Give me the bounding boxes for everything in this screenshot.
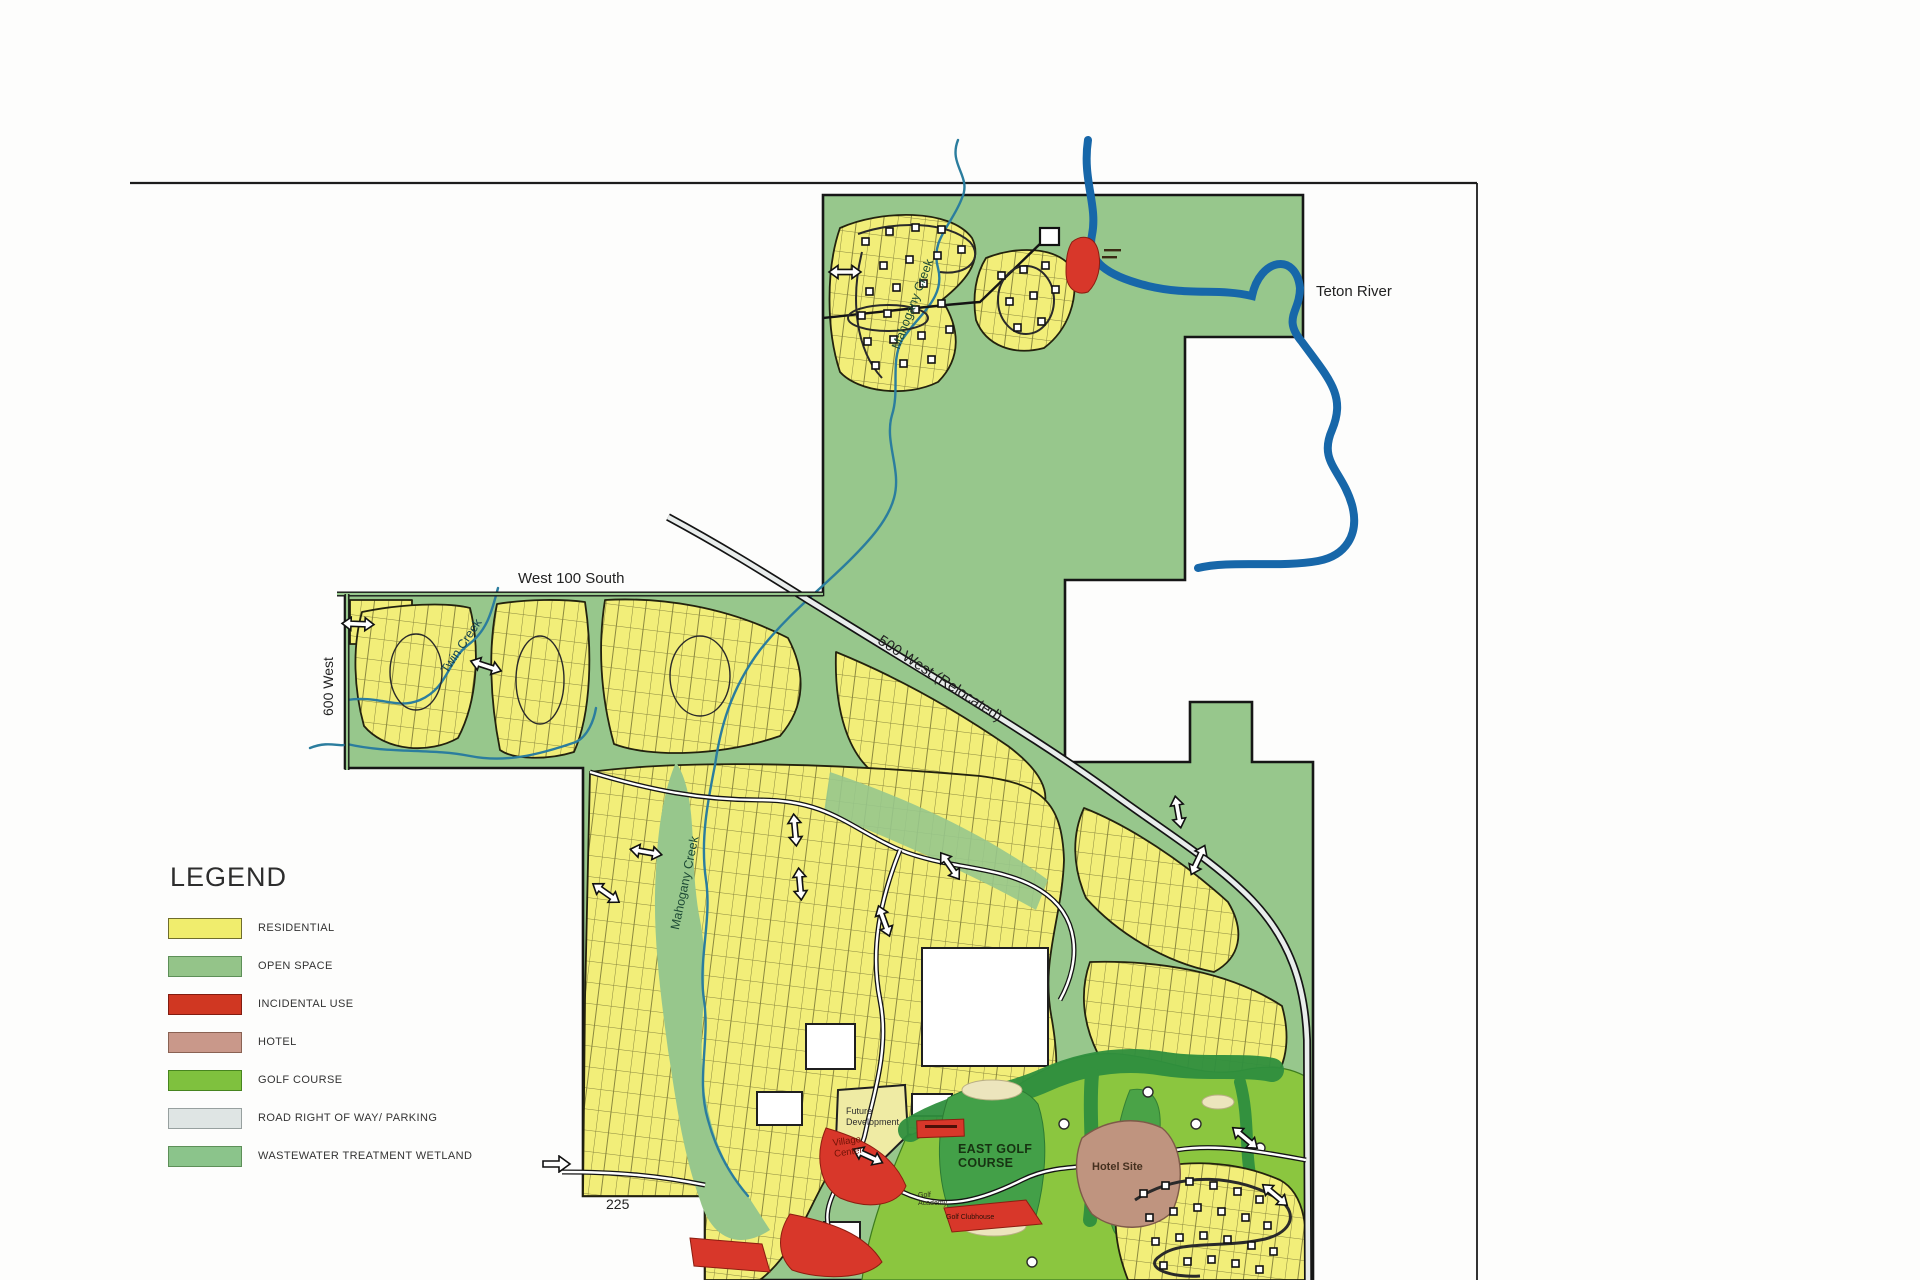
- cabin-square: [1020, 266, 1027, 273]
- cabin-square: [938, 226, 945, 233]
- cabin-square: [886, 228, 893, 235]
- label-west-100-south: West 100 South: [518, 570, 624, 587]
- legend-item-label: INCIDENTAL USE: [258, 998, 353, 1010]
- residential-area: [355, 605, 475, 749]
- cabin-square: [893, 284, 900, 291]
- label-route-225: 225: [606, 1196, 629, 1212]
- legend-swatch: [168, 918, 242, 939]
- cabin-square: [934, 252, 941, 259]
- cabin-square: [1170, 1208, 1177, 1215]
- cabin-square: [1270, 1248, 1277, 1255]
- cabin-square: [1264, 1222, 1271, 1229]
- legend-swatch: [168, 1146, 242, 1167]
- legend-swatch: [168, 1108, 242, 1129]
- legend-item: WASTEWATER TREATMENT WETLAND: [168, 1145, 528, 1167]
- cabin-square: [864, 338, 871, 345]
- legend-swatch: [168, 956, 242, 977]
- label-600-west: 600 West: [320, 657, 336, 716]
- cabin-square: [918, 332, 925, 339]
- cabin-square: [884, 310, 891, 317]
- label-hotel-site: Hotel Site: [1092, 1161, 1143, 1173]
- cabin-square: [906, 256, 913, 263]
- cabin-square: [912, 224, 919, 231]
- legend-item-label: RESIDENTIAL: [258, 922, 335, 934]
- cabin-square: [1052, 286, 1059, 293]
- legend-item: OPEN SPACE: [168, 955, 528, 977]
- cabin-square: [866, 288, 873, 295]
- cabin-square: [1042, 262, 1049, 269]
- legend-item: HOTEL: [168, 1031, 528, 1053]
- cabin-square: [946, 326, 953, 333]
- cabin-square: [880, 262, 887, 269]
- white-parcel: [757, 1092, 802, 1125]
- legend-item-label: OPEN SPACE: [258, 960, 333, 972]
- legend-item-label: GOLF COURSE: [258, 1074, 342, 1086]
- cabin-square: [1208, 1256, 1215, 1263]
- cabin-square: [1248, 1242, 1255, 1249]
- legend-item-label: WASTEWATER TREATMENT WETLAND: [258, 1150, 472, 1162]
- cabin-square: [1242, 1214, 1249, 1221]
- label-golf-clubhouse: Golf Clubhouse: [946, 1214, 994, 1221]
- residential-area: [491, 600, 589, 758]
- legend-swatch: [168, 1032, 242, 1053]
- cabin-square: [1176, 1234, 1183, 1241]
- leader-square-marker: [1040, 228, 1059, 245]
- cabin-square: [862, 238, 869, 245]
- cabin-square: [1152, 1238, 1159, 1245]
- cabin-square: [1256, 1196, 1263, 1203]
- legend-item: RESIDENTIAL: [168, 917, 528, 939]
- cabin-square: [1234, 1188, 1241, 1195]
- white-parcel: [922, 948, 1048, 1066]
- legend-item: GOLF COURSE: [168, 1069, 528, 1091]
- cabin-square: [1232, 1260, 1239, 1267]
- cabin-square: [1162, 1182, 1169, 1189]
- cabin-square: [1014, 324, 1021, 331]
- hotel-site-area: [1077, 1121, 1181, 1227]
- label-teton-river: Teton River: [1316, 283, 1392, 300]
- cabin-square: [938, 300, 945, 307]
- cabin-square: [1210, 1182, 1217, 1189]
- legend-title: LEGEND: [170, 862, 528, 893]
- cabin-square: [1038, 318, 1045, 325]
- cabin-square: [1140, 1190, 1147, 1197]
- incidental-red-bar: [917, 1119, 965, 1138]
- cabin-square: [872, 362, 879, 369]
- legend-item: INCIDENTAL USE: [168, 993, 528, 1015]
- cabin-square: [1184, 1258, 1191, 1265]
- cabin-square: [928, 356, 935, 363]
- cabin-square: [1186, 1178, 1193, 1185]
- cabin-square: [998, 272, 1005, 279]
- white-parcel: [806, 1024, 855, 1069]
- label-future-development: Future Development: [846, 1106, 910, 1129]
- legend-swatch: [168, 1070, 242, 1091]
- legend-rows: RESIDENTIAL OPEN SPACE INCIDENTAL USE HO…: [168, 917, 528, 1167]
- cabin-square: [1224, 1236, 1231, 1243]
- label-east-golf-course: EAST GOLF COURSE: [958, 1142, 1038, 1171]
- legend-item: ROAD RIGHT OF WAY/ PARKING: [168, 1107, 528, 1129]
- cabin-square: [1194, 1204, 1201, 1211]
- legend-item-label: HOTEL: [258, 1036, 297, 1048]
- cabin-square: [958, 246, 965, 253]
- cabin-square: [1200, 1232, 1207, 1239]
- cabin-square: [1218, 1208, 1225, 1215]
- cabin-square: [1256, 1266, 1263, 1273]
- legend: LEGEND RESIDENTIAL OPEN SPACE INCIDENTAL…: [168, 862, 528, 1183]
- cabin-square: [1160, 1262, 1167, 1269]
- scanned-master-plan-page: { "page": {"background": "#fdfdfc"}, "le…: [0, 0, 1920, 1280]
- label-golf-academy: Golf Academy: [918, 1192, 958, 1209]
- legend-swatch: [168, 994, 242, 1015]
- legend-item-label: ROAD RIGHT OF WAY/ PARKING: [258, 1112, 437, 1124]
- cabin-square: [1030, 292, 1037, 299]
- cabin-square: [1006, 298, 1013, 305]
- cabin-square: [858, 312, 865, 319]
- cabin-square: [1146, 1214, 1153, 1221]
- cabin-square: [900, 360, 907, 367]
